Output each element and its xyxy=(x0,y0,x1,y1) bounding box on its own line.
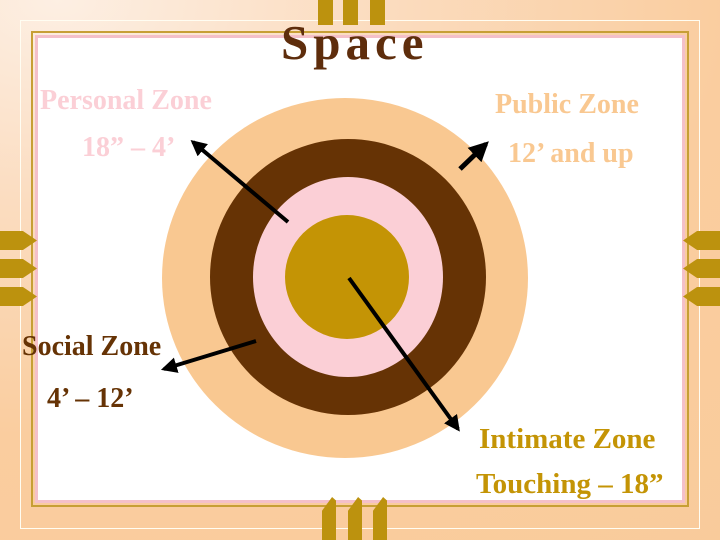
slide: Space Personal Zone 18” – 4’ Public Zone… xyxy=(0,0,720,540)
intimate-zone-label: Intimate Zone xyxy=(479,425,655,454)
personal-zone-label: Personal Zone xyxy=(40,87,212,115)
slide-title: Space xyxy=(281,18,429,67)
social-zone-label: Social Zone xyxy=(22,333,161,361)
public-zone-range: 12’ and up xyxy=(508,140,634,168)
social-zone-range: 4’ – 12’ xyxy=(47,385,134,413)
intimate-zone-range: Touching – 18” xyxy=(476,470,664,499)
personal-zone-range: 18” – 4’ xyxy=(82,134,175,162)
intimate-zone-ring xyxy=(285,215,409,339)
public-zone-label: Public Zone xyxy=(495,91,639,119)
proxemics-zones-diagram xyxy=(0,0,720,540)
